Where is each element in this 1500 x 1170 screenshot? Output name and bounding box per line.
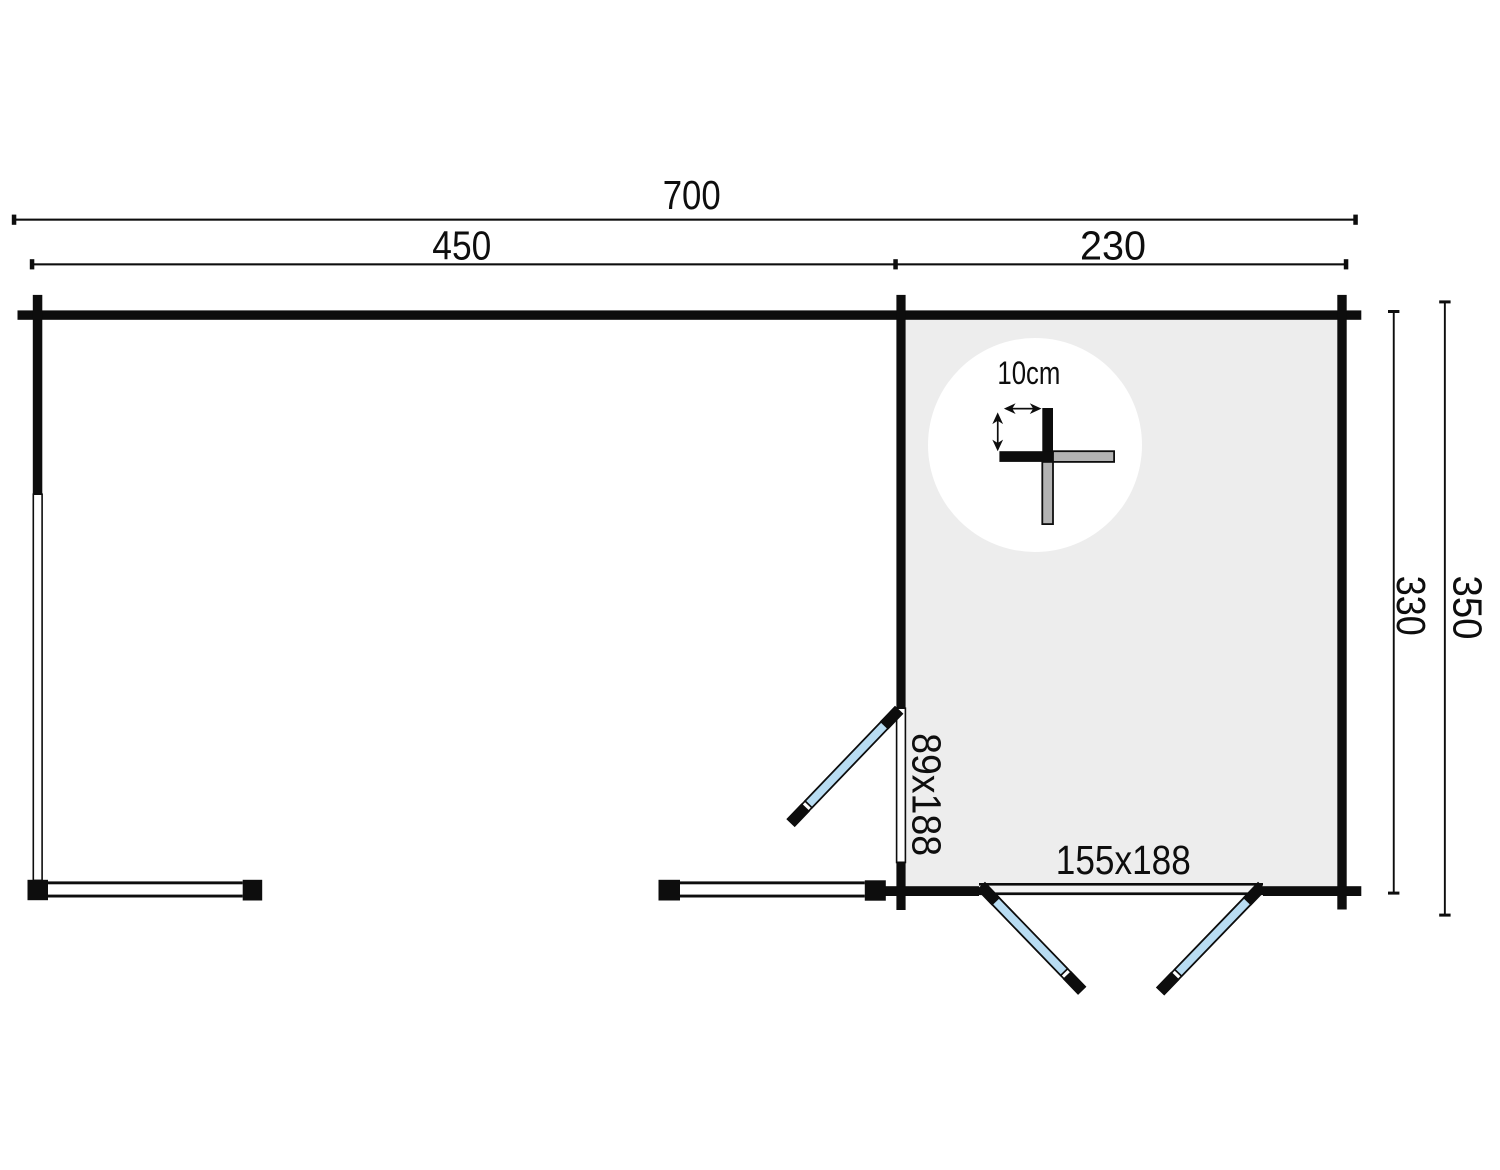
svg-text:155x188: 155x188	[1056, 837, 1191, 883]
svg-text:450: 450	[432, 222, 491, 268]
svg-text:89x188: 89x188	[903, 733, 949, 856]
svg-text:700: 700	[663, 172, 721, 218]
svg-text:330: 330	[1388, 576, 1434, 636]
svg-text:350: 350	[1444, 576, 1490, 640]
svg-text:10cm: 10cm	[997, 354, 1060, 391]
svg-text:230: 230	[1080, 223, 1146, 269]
